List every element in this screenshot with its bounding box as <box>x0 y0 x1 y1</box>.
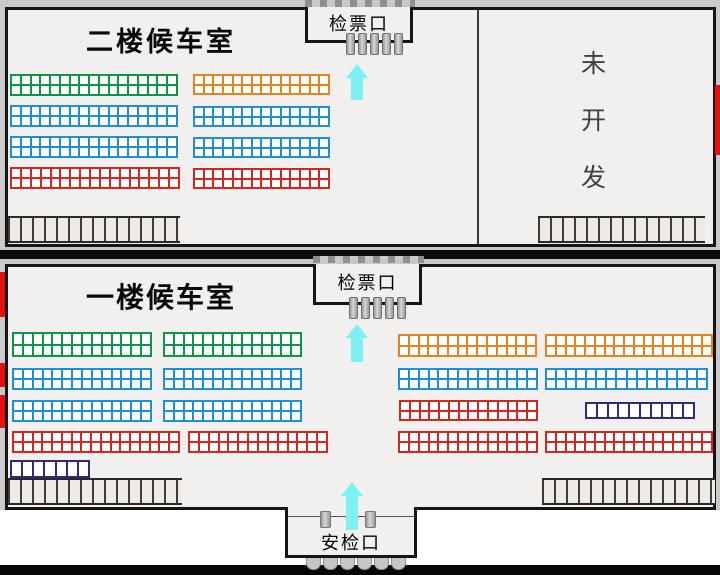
seat-cell <box>44 412 52 420</box>
seat-cell <box>205 170 213 178</box>
seat-cell <box>119 148 127 156</box>
seat-cell <box>630 404 639 417</box>
seat-cell <box>112 433 120 441</box>
seat-cell <box>311 149 319 157</box>
seat-cell <box>93 412 101 420</box>
seat-cell <box>93 370 101 378</box>
seat-cell <box>45 462 54 476</box>
seat-cell <box>648 370 656 378</box>
seat-cell <box>410 443 418 451</box>
seat-cell <box>615 347 623 356</box>
seat-cell <box>32 76 40 84</box>
seat-block-blue <box>193 137 330 158</box>
seat-cell <box>654 443 662 451</box>
seat-block-blue <box>12 368 152 390</box>
seat-cell <box>110 76 118 84</box>
seat-cell <box>684 347 692 356</box>
turnstile-pillar-icon <box>358 33 367 55</box>
seat-cell <box>111 169 119 177</box>
seat-cell <box>41 138 49 146</box>
seat-cell <box>688 380 696 388</box>
seat-cell <box>273 370 281 378</box>
security-scallop-icon <box>391 558 406 570</box>
seat-cell <box>129 138 137 146</box>
seat-cell <box>430 402 438 410</box>
seat-cell <box>262 170 270 178</box>
seat-cell <box>194 370 202 378</box>
seat-block-green <box>12 332 152 357</box>
seat-cell <box>220 433 228 441</box>
seat-cell <box>71 107 79 115</box>
seat-cell <box>160 443 168 451</box>
seat-cell <box>430 433 438 441</box>
seat-cell <box>119 76 127 84</box>
seat-cell <box>693 443 701 451</box>
seat-cell <box>129 117 137 125</box>
seat-cell <box>291 118 299 126</box>
seat-cell <box>282 334 290 344</box>
seat-cell <box>450 412 458 420</box>
seat-cell <box>122 334 130 344</box>
seat-cell <box>272 139 280 147</box>
seat-cell <box>292 346 300 356</box>
seat-block-blue <box>398 368 538 390</box>
seat-cell <box>291 139 299 147</box>
seat-cell <box>139 138 147 146</box>
seat-cell <box>478 336 486 345</box>
seat-block-blue <box>193 106 330 127</box>
seat-cell <box>469 402 477 410</box>
seat-cell <box>410 370 418 378</box>
seat-cell <box>253 118 261 126</box>
seat-cell <box>185 370 193 378</box>
seat-cell <box>607 380 615 388</box>
turnstile-pillar-icon <box>370 33 379 55</box>
seat-cell <box>469 380 477 388</box>
seat-cell <box>703 347 711 356</box>
seat-cell <box>429 347 437 356</box>
exit-marker-f1-left-3 <box>0 395 5 428</box>
seat-cell <box>547 443 555 451</box>
seat-cell <box>648 380 656 388</box>
seat-cell <box>469 412 477 420</box>
seat-cell <box>410 336 418 345</box>
seat-cell <box>262 108 270 116</box>
seat-cell <box>654 347 662 356</box>
floor2-turnstiles <box>346 33 403 55</box>
seat-cell <box>91 169 99 177</box>
seat-block-blue <box>10 136 178 158</box>
seat-cell <box>668 370 676 378</box>
seat-cell <box>175 334 183 344</box>
seat-cell <box>32 117 40 125</box>
seat-cell <box>262 180 270 188</box>
seat-cell <box>61 117 69 125</box>
seat-cell <box>149 86 157 94</box>
seat-cell <box>459 380 467 388</box>
seat-cell <box>567 336 575 345</box>
seat-cell <box>61 86 69 94</box>
seat-cell <box>100 107 108 115</box>
seat-cell <box>224 346 232 356</box>
seat-cell <box>165 402 173 410</box>
seat-cell <box>92 433 100 441</box>
seat-cell <box>449 347 457 356</box>
seat-cell <box>449 380 457 388</box>
seat-cell <box>508 370 516 378</box>
seat-cell <box>498 347 506 356</box>
seat-cell <box>243 412 251 420</box>
seat-cell <box>273 412 281 420</box>
seat-block-red <box>10 167 180 189</box>
seat-cell <box>103 346 111 356</box>
security-scallops <box>306 558 406 570</box>
seat-cell <box>469 433 477 441</box>
seat-cell <box>14 380 22 388</box>
seat-cell <box>22 138 30 146</box>
seat-cell <box>90 107 98 115</box>
seat-cell <box>489 370 497 378</box>
seat-cell <box>518 402 526 410</box>
seat-cell <box>80 86 88 94</box>
seat-cell <box>253 412 261 420</box>
seat-cell <box>92 443 100 451</box>
seat-cell <box>638 370 646 378</box>
seat-cell <box>142 334 150 344</box>
seat-cell <box>243 76 251 84</box>
seat-cell <box>142 380 150 388</box>
seat-cell <box>262 76 270 84</box>
seat-cell <box>53 412 61 420</box>
seat-cell <box>73 412 81 420</box>
seat-cell <box>32 107 40 115</box>
seat-cell <box>703 433 711 441</box>
seat-cell <box>249 443 257 451</box>
seat-cell <box>214 170 222 178</box>
seat-cell <box>479 402 487 410</box>
seat-cell <box>112 443 120 451</box>
seat-cell <box>205 118 213 126</box>
seat-cell <box>224 149 232 157</box>
seat-cell <box>12 148 20 156</box>
seat-cell <box>140 179 148 187</box>
seat-cell <box>22 179 30 187</box>
seat-cell <box>63 334 71 344</box>
seat-cell <box>282 380 290 388</box>
seat-cell <box>22 169 30 177</box>
seat-cell <box>34 370 42 378</box>
seat-cell <box>673 404 682 417</box>
seat-cell <box>234 180 242 188</box>
seat-cell <box>440 412 448 420</box>
seat-cell <box>83 402 91 410</box>
seat-cell <box>24 433 32 441</box>
seat-cell <box>73 402 81 410</box>
seat-cell <box>289 443 297 451</box>
seat-cell <box>674 347 682 356</box>
seat-cell <box>93 380 101 388</box>
seat-cell <box>110 86 118 94</box>
seat-cell <box>617 380 625 388</box>
seat-cell <box>628 380 636 388</box>
seat-cell <box>298 433 306 441</box>
seat-cell <box>459 443 467 451</box>
seat-cell <box>547 433 555 441</box>
seat-cell <box>41 76 49 84</box>
seat-cell <box>51 107 59 115</box>
seat-cell <box>205 149 213 157</box>
seat-cell <box>42 169 50 177</box>
floor2-partition-wall <box>477 10 479 244</box>
seat-cell <box>440 402 448 410</box>
seat-cell <box>168 76 176 84</box>
seat-cell <box>617 370 625 378</box>
seat-cell <box>121 433 129 441</box>
seat-cell <box>61 76 69 84</box>
seat-cell <box>73 380 81 388</box>
seat-cell <box>200 443 208 451</box>
seat-cell <box>638 380 646 388</box>
seat-cell <box>142 346 150 356</box>
seat-cell <box>239 433 247 441</box>
seat-cell <box>53 370 61 378</box>
seat-cell <box>664 433 672 441</box>
seat-cell <box>607 370 615 378</box>
seat-cell <box>557 336 565 345</box>
seat-cell <box>100 138 108 146</box>
seat-cell <box>557 443 565 451</box>
station-floor-plan: 二楼候车室 未 开 发 检票口 一楼候车室 检票口 安检口 <box>0 0 720 575</box>
seat-cell <box>272 86 280 94</box>
arrow-head <box>346 324 368 338</box>
stairs-f1-right <box>542 478 715 505</box>
seat-cell <box>489 380 497 388</box>
exit-marker-f2-right <box>715 85 720 155</box>
seat-cell <box>439 380 447 388</box>
turnstile-pillar-icon <box>385 297 394 319</box>
seat-cell <box>113 380 121 388</box>
exit-marker-f1-left-1 <box>0 272 5 317</box>
seat-cell <box>400 433 408 441</box>
seat-cell <box>664 336 672 345</box>
seat-cell <box>320 139 328 147</box>
seat-cell <box>400 380 408 388</box>
seat-cell <box>577 370 585 378</box>
seat-cell <box>528 412 536 420</box>
turnstile-pillar-icon <box>349 297 358 319</box>
seat-cell <box>703 443 711 451</box>
seat-cell <box>113 412 121 420</box>
seat-cell <box>282 139 290 147</box>
seat-cell <box>103 402 111 410</box>
stairs-f2-right <box>538 216 705 243</box>
seat-cell <box>311 180 319 188</box>
seat-block-purple <box>10 460 90 478</box>
seat-cell <box>243 86 251 94</box>
undeveloped-char-3: 发 <box>574 158 614 194</box>
seat-cell <box>488 336 496 345</box>
seat-cell <box>527 336 535 345</box>
seat-cell <box>131 443 139 451</box>
seat-cell <box>615 433 623 441</box>
seat-cell <box>292 402 300 410</box>
seat-cell <box>292 334 300 344</box>
seat-cell <box>263 402 271 410</box>
seat-cell <box>204 412 212 420</box>
seat-cell <box>625 433 633 441</box>
seat-cell <box>308 433 316 441</box>
seat-cell <box>79 462 88 476</box>
seat-cell <box>587 370 595 378</box>
seat-cell <box>282 76 290 84</box>
seat-cell <box>205 139 213 147</box>
seat-cell <box>139 86 147 94</box>
seat-cell <box>234 149 242 157</box>
seat-cell <box>410 433 418 441</box>
seat-cell <box>509 402 517 410</box>
seat-cell <box>113 346 121 356</box>
seat-cell <box>421 402 429 410</box>
seat-cell <box>233 370 241 378</box>
seat-cell <box>83 346 91 356</box>
undeveloped-char-1: 未 <box>574 44 614 80</box>
seat-cell <box>239 443 247 451</box>
seat-cell <box>420 347 428 356</box>
seat-cell <box>243 402 251 410</box>
seat-cell <box>175 346 183 356</box>
seat-cell <box>243 370 251 378</box>
seat-cell <box>479 412 487 420</box>
seat-cell <box>311 139 319 147</box>
seat-cell <box>90 138 98 146</box>
seat-cell <box>103 380 111 388</box>
seat-cell <box>214 380 222 388</box>
seat-cell <box>51 86 59 94</box>
seat-cell <box>606 336 614 345</box>
seat-cell <box>654 336 662 345</box>
seat-cell <box>113 370 121 378</box>
seat-cell <box>273 334 281 344</box>
seat-cell <box>129 76 137 84</box>
seat-cell <box>658 380 666 388</box>
seat-cell <box>478 347 486 356</box>
seat-cell <box>301 118 309 126</box>
seat-cell <box>234 86 242 94</box>
seat-cell <box>61 148 69 156</box>
seat-cell <box>61 169 69 177</box>
seat-cell <box>73 334 81 344</box>
seat-cell <box>149 107 157 115</box>
seat-cell <box>597 380 605 388</box>
seat-cell <box>557 433 565 441</box>
seat-cell <box>279 443 287 451</box>
seat-cell <box>557 370 565 378</box>
seat-cell <box>34 462 43 476</box>
seat-cell <box>185 334 193 344</box>
seat-cell <box>292 412 300 420</box>
seat-cell <box>587 404 596 417</box>
seat-cell <box>439 347 447 356</box>
security-scallop-icon <box>306 558 321 570</box>
seat-cell <box>674 336 682 345</box>
seat-cell <box>224 412 232 420</box>
seat-cell <box>320 149 328 157</box>
seat-cell <box>430 380 438 388</box>
seat-cell <box>24 334 32 344</box>
seat-cell <box>282 108 290 116</box>
seat-cell <box>102 443 110 451</box>
seat-cell <box>214 118 222 126</box>
seat-cell <box>272 149 280 157</box>
seat-cell <box>693 336 701 345</box>
seat-cell <box>22 76 30 84</box>
seat-cell <box>635 347 643 356</box>
seat-cell <box>320 118 328 126</box>
seat-cell <box>318 443 326 451</box>
seat-cell <box>628 370 636 378</box>
seat-cell <box>113 402 121 410</box>
seat-cell <box>71 86 79 94</box>
seat-cell <box>149 138 157 146</box>
seat-cell <box>34 334 42 344</box>
seat-cell <box>272 180 280 188</box>
seat-cell <box>63 402 71 410</box>
seat-cell <box>703 336 711 345</box>
seat-cell <box>567 347 575 356</box>
seat-cell <box>291 149 299 157</box>
seat-cell <box>165 370 173 378</box>
seat-cell <box>224 170 232 178</box>
seat-cell <box>518 370 526 378</box>
seat-cell <box>489 402 497 410</box>
seat-cell <box>132 402 140 410</box>
seat-cell <box>400 443 408 451</box>
seat-cell <box>185 346 193 356</box>
seat-cell <box>557 347 565 356</box>
seat-cell <box>214 149 222 157</box>
seat-cell <box>517 336 525 345</box>
seat-cell <box>24 412 32 420</box>
seat-cell <box>12 86 20 94</box>
seat-cell <box>598 404 607 417</box>
seat-cell <box>420 370 428 378</box>
seat-cell <box>175 380 183 388</box>
seat-cell <box>100 86 108 94</box>
seat-cell <box>291 108 299 116</box>
seat-cell <box>158 138 166 146</box>
seat-block-red <box>398 431 538 453</box>
seat-cell <box>233 380 241 388</box>
seat-cell <box>101 169 109 177</box>
seat-cell <box>150 169 158 177</box>
seat-cell <box>308 443 316 451</box>
seat-cell <box>63 370 71 378</box>
seat-cell <box>149 148 157 156</box>
seat-cell <box>586 336 594 345</box>
seat-cell <box>234 118 242 126</box>
seat-cell <box>122 412 130 420</box>
arrow-head <box>341 482 363 496</box>
seat-cell <box>204 346 212 356</box>
seat-cell <box>71 138 79 146</box>
seat-cell <box>113 334 121 344</box>
seat-cell <box>12 179 20 187</box>
seat-cell <box>576 336 584 345</box>
turnstile-pillar-icon <box>397 297 406 319</box>
seat-cell <box>119 138 127 146</box>
seat-cell <box>12 169 20 177</box>
seat-cell <box>14 433 22 441</box>
